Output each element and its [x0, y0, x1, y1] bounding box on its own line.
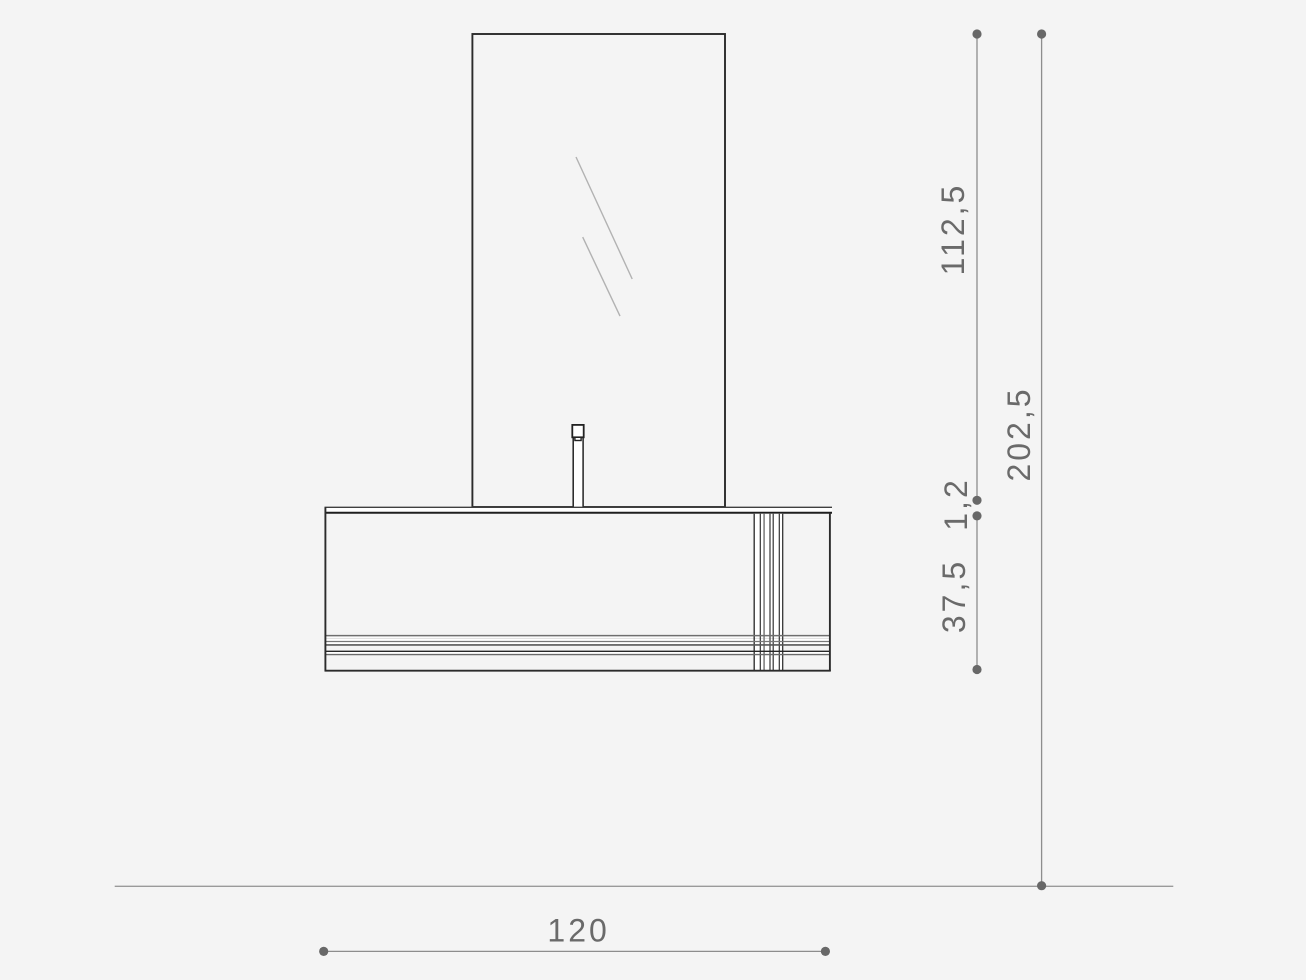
svg-text:37,5: 37,5 — [936, 559, 972, 633]
svg-text:202,5: 202,5 — [1001, 386, 1037, 481]
svg-text:1,2: 1,2 — [938, 477, 974, 530]
svg-text:120: 120 — [547, 913, 609, 949]
svg-text:112,5: 112,5 — [935, 183, 971, 276]
